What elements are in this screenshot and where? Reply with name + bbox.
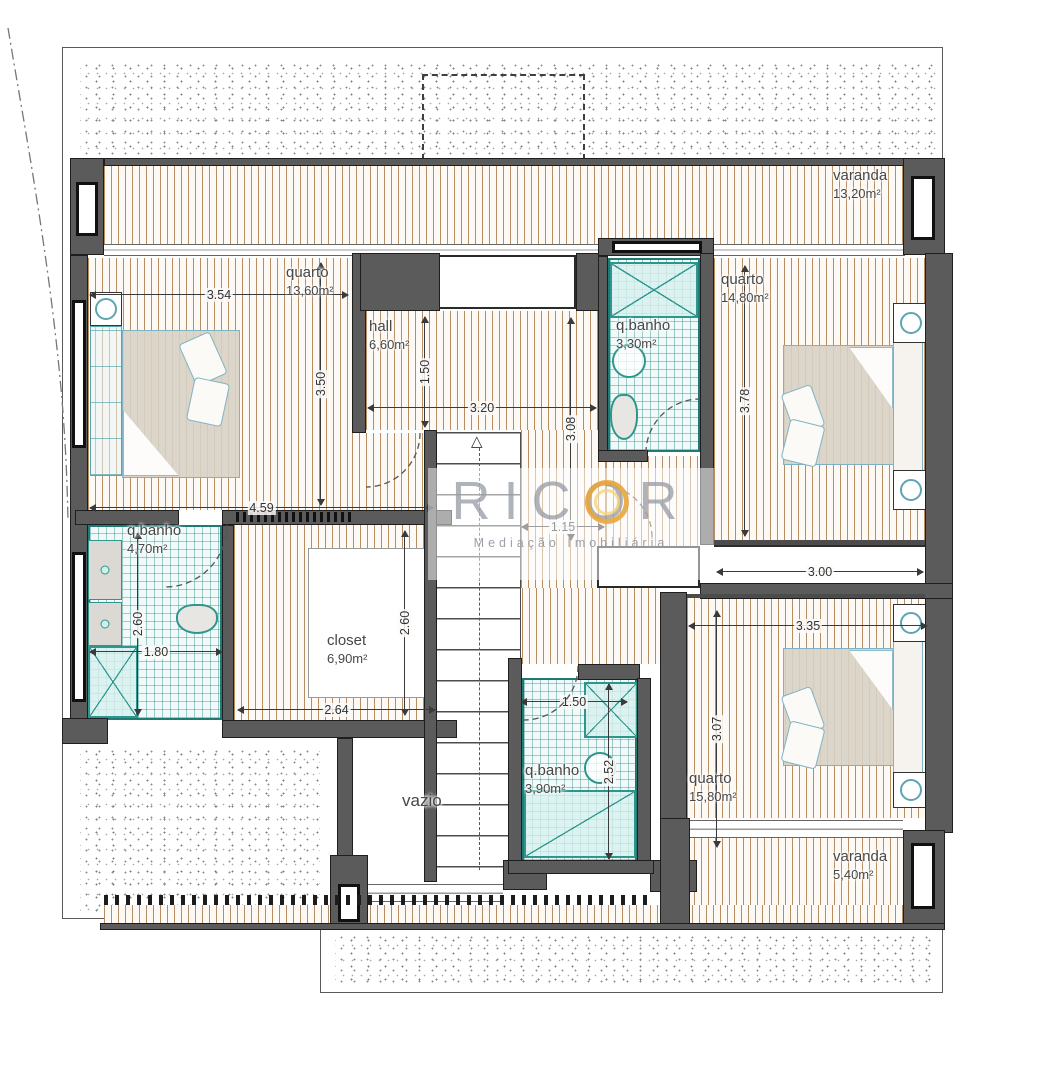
wall <box>360 253 440 311</box>
dimension-label: 1.80 <box>142 645 170 659</box>
dimension-label: 2.64 <box>322 703 350 717</box>
dimension-label: 3.78 <box>738 387 752 415</box>
wall <box>578 664 640 680</box>
dimension-label: 3.50 <box>314 370 328 398</box>
toilet-fixture <box>176 604 218 634</box>
dimension-label: 3.07 <box>710 715 724 743</box>
dimension-label: 2.60 <box>131 610 145 638</box>
dimension-label: 3.00 <box>806 565 834 579</box>
dimension-3.78: 3.78 <box>744 266 745 536</box>
wood-deck-floor <box>522 588 660 664</box>
window <box>612 241 702 253</box>
window <box>911 843 935 909</box>
shower-fixture <box>88 646 138 718</box>
wall <box>222 720 457 738</box>
shower-fixture <box>584 682 638 738</box>
watermark-tagline: Mediação Imobiliária <box>428 536 714 550</box>
dimension-3.50: 3.50 <box>320 263 321 505</box>
dimension-label: 1.50 <box>560 695 588 709</box>
toilet-fixture <box>610 394 638 440</box>
watermark: RICOR Mediação Imobiliária <box>428 468 714 580</box>
wall-niche <box>438 255 576 309</box>
wall <box>222 525 234 723</box>
dimension-label: 2.60 <box>398 609 412 637</box>
ground-texture <box>80 746 320 912</box>
wood-deck-floor <box>104 905 905 925</box>
wall <box>62 718 108 744</box>
dimension-2.64: 2.64 <box>238 709 435 710</box>
closet-open-area <box>308 548 440 698</box>
window <box>72 300 86 448</box>
dimension-label: 3.35 <box>794 619 822 633</box>
wall <box>660 818 690 928</box>
headboard-fixture <box>893 640 923 774</box>
dimension-3.07: 3.07 <box>716 611 717 847</box>
wall <box>104 158 905 166</box>
dimension-1.50: 1.50 <box>521 701 627 702</box>
dimension-1.80: 1.80 <box>90 651 222 652</box>
window <box>72 552 86 702</box>
wall <box>598 256 608 456</box>
watermark-logo-ring-icon <box>585 480 629 524</box>
wall <box>637 678 651 870</box>
dimension-3.20: 3.20 <box>368 407 596 408</box>
dimension-label: 3.54 <box>205 288 233 302</box>
tub-fixture <box>524 790 636 858</box>
wardrobe-fixture <box>90 326 122 476</box>
void-railing <box>104 895 654 905</box>
window <box>76 182 98 236</box>
wall-thin <box>714 540 925 545</box>
vanity-fixture <box>88 602 122 646</box>
dimension-label: 3.08 <box>564 415 578 443</box>
dimension-2.60: 2.60 <box>137 533 138 715</box>
roof-overhang-outline <box>422 74 585 160</box>
dimension-2.52: 2.52 <box>608 684 609 859</box>
staircase-up-arrow-icon: △ <box>471 434 487 450</box>
wall <box>508 658 522 870</box>
ground-texture <box>335 932 935 986</box>
watermark-brand: RICOR <box>428 474 714 528</box>
dimension-4.59: 4.59 <box>90 507 433 508</box>
wall-thin <box>687 594 925 598</box>
nightstand-fixture <box>893 772 929 808</box>
dimension-3.35: 3.35 <box>689 625 927 626</box>
wall <box>508 860 654 874</box>
dimension-3.00: 3.00 <box>717 571 923 572</box>
vanity-fixture <box>88 540 122 600</box>
dimension-label: 3.20 <box>468 401 496 415</box>
window <box>911 176 935 240</box>
nightstand-fixture <box>893 303 929 343</box>
property-boundary-line <box>8 28 68 520</box>
nightstand-fixture <box>893 470 929 510</box>
window-glazing-band <box>690 820 903 838</box>
dimension-label: 2.52 <box>602 757 616 785</box>
dimension-1.50: 1.50 <box>424 317 425 427</box>
wood-deck-floor <box>352 433 424 510</box>
wall <box>598 450 648 462</box>
dimension-label: 4.59 <box>247 501 275 515</box>
wood-deck-floor <box>104 166 903 244</box>
dimension-label: 1.50 <box>418 358 432 386</box>
shower-fixture <box>610 262 698 318</box>
floor-plan-canvas: △3.543.501.503.203.083.784.591.152.601.8… <box>0 0 1064 1080</box>
wall <box>925 253 953 833</box>
dimension-2.60: 2.60 <box>404 531 405 715</box>
wall <box>100 923 945 930</box>
headboard-fixture <box>893 336 923 472</box>
